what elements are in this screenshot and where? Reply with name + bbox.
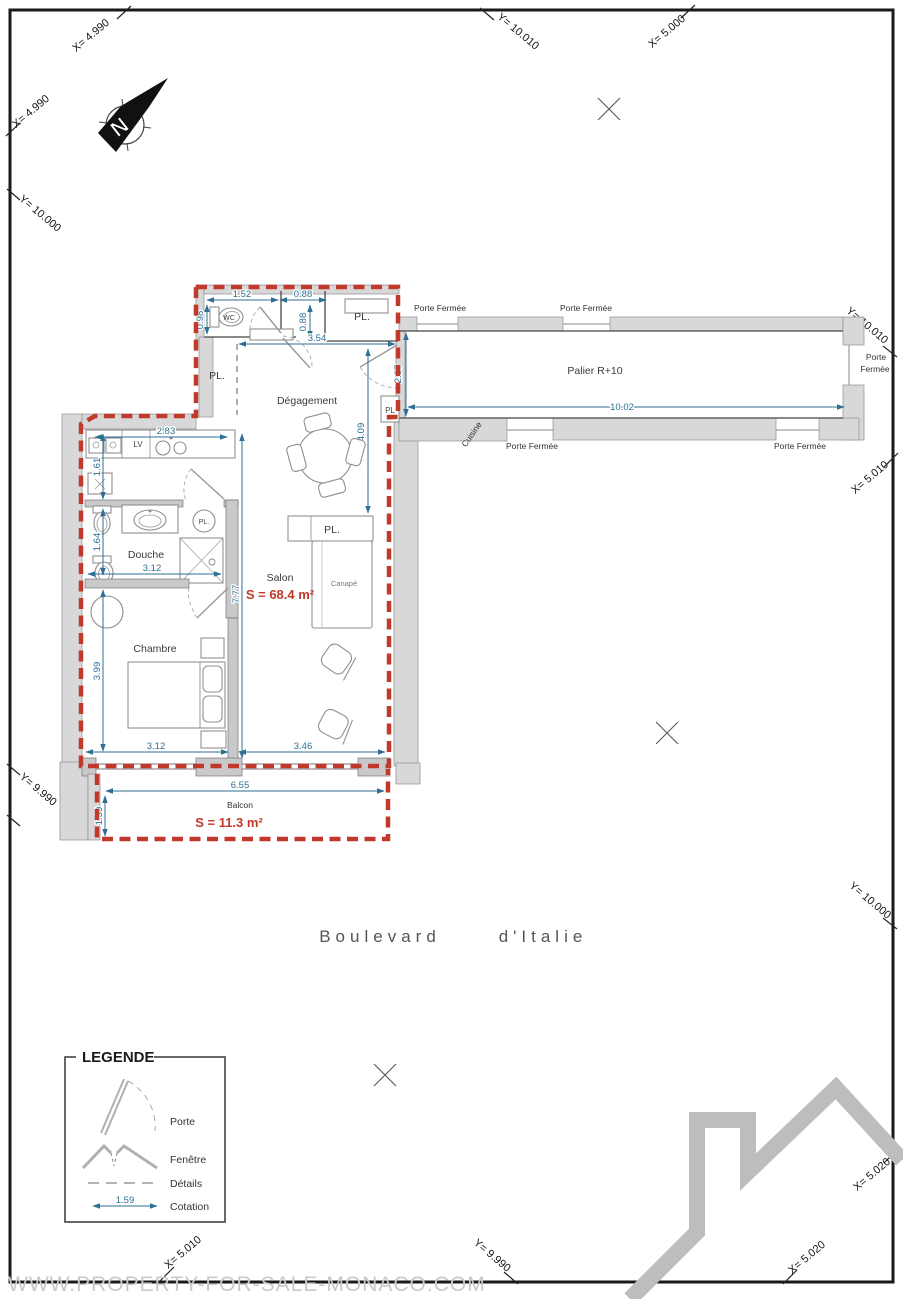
grid-label-top-2: Y= 10.010 <box>495 11 541 53</box>
dim-bathroom-depth: 1.64 <box>92 533 103 552</box>
grid-label-left-1: X= 4.990 <box>10 93 52 131</box>
closet-label-top: PL. <box>354 311 370 323</box>
grid-label-top-1: X= 4.990 <box>70 17 112 55</box>
grid-label-right-4: X= 5.020 <box>851 1156 893 1194</box>
salon-area-label: S = 68.4 m² <box>246 587 315 602</box>
legend-item-cotation: Cotation <box>170 1201 209 1213</box>
closed-door-label-3: Porte Fermée <box>506 441 558 451</box>
closed-door-label-right-1: Porte <box>866 352 887 362</box>
closed-door-label-2: Porte Fermée <box>560 303 612 313</box>
closet-label-bathroom: PL. <box>199 519 210 526</box>
dim-kitchen-width: 2.83 <box>157 426 176 437</box>
room-label-chambre: Chambre <box>133 643 176 655</box>
dim-niche-width: 0.88 <box>294 289 313 300</box>
dim-corridor-length: 10.02 <box>610 402 634 413</box>
legend-cotation-value: 1.59 <box>116 1195 135 1206</box>
legend-item-porte: Porte <box>170 1116 195 1128</box>
legend: LEGENDE Porte Fenêtre Détails 1.59 Cotat… <box>65 1046 225 1222</box>
entry-block: WC PL. PL. PL Dégagement 1.52 0.88 0.98 … <box>195 285 399 513</box>
grid-label-right-2: X= 5.010 <box>849 459 891 497</box>
legend-title: LEGENDE <box>82 1049 155 1066</box>
dim-salon-width: 3.46 <box>294 741 313 752</box>
grid-label-bottom-2: Y= 9.990 <box>471 1237 513 1275</box>
grid-label-bottom-3: X= 5.020 <box>786 1239 828 1277</box>
watermark: WWW.PROPERTY-FOR-SALE-MONACO.COM <box>8 1273 486 1296</box>
dim-salon-height: 7.77 <box>231 585 242 604</box>
bedroom-chambre: Chambre 3.99 3.12 <box>86 590 238 765</box>
balcony-area-label: S = 11.3 m² <box>195 815 263 830</box>
dim-kitchen-depth: 1.61 <box>92 458 103 477</box>
room-label-balcon: Balcon <box>227 800 253 810</box>
wardrobe-label: PL. <box>324 524 340 536</box>
grid-label-bottom-1: X= 5.010 <box>162 1234 204 1272</box>
grid-label-top-3: X= 5.000 <box>646 13 688 51</box>
closed-door-label-right-2: Fermée <box>860 364 890 374</box>
floor-plan-page: X= 4.990 Y= 10.010 X= 5.000 X= 4.990 Y= … <box>0 0 903 1299</box>
house-logo <box>630 1088 902 1299</box>
street-name: Boulevard d'Italie <box>319 927 587 946</box>
dishwasher-label: LV <box>133 440 143 449</box>
room-label-degagement: Dégagement <box>277 395 337 407</box>
room-label-salon: Salon <box>267 572 294 584</box>
dim-entry-depth: 0.88 <box>298 313 309 332</box>
street-name-part2: d'Italie <box>499 927 588 946</box>
floor-plan-drawing: X= 4.990 Y= 10.010 X= 5.000 X= 4.990 Y= … <box>0 0 903 1299</box>
legend-item-details: Détails <box>170 1178 202 1190</box>
dim-bathroom-width: 3.12 <box>143 563 162 574</box>
dim-wc-width: 1.52 <box>233 289 252 300</box>
legend-item-fenetre: Fenêtre <box>170 1154 206 1166</box>
closed-door-label-1: Porte Fermée <box>414 303 466 313</box>
dim-bedroom-width: 3.12 <box>147 741 166 752</box>
room-label-palier: Palier R+10 <box>567 365 622 377</box>
kitchen: LV 2.83 1.61 <box>86 426 235 501</box>
closed-door-label-4: Porte Fermée <box>774 441 826 451</box>
room-label-douche: Douche <box>128 549 164 561</box>
balcony: 6.55 Balcon S = 11.3 m² 1.39 <box>88 774 384 840</box>
street-name-part1: Boulevard <box>319 927 441 946</box>
armchair <box>316 707 356 745</box>
compass-north-arrow: N <box>98 78 168 152</box>
closet-label-left: PL. <box>209 370 225 382</box>
dim-hall-width: 3.54 <box>308 333 327 344</box>
room-label-wc: WC <box>223 315 235 322</box>
living-salon: PL. Canapé Salon S = 68.4 m² 7.77 3.46 <box>231 434 385 758</box>
armchair <box>318 641 358 680</box>
closet-label-junction: PL <box>385 406 395 415</box>
grid-label-left-2: Y= 10.000 <box>17 193 63 235</box>
dim-bedroom-height: 3.99 <box>92 662 103 681</box>
dim-balcony-width: 6.55 <box>231 780 250 791</box>
grid-label-left-3: Y= 9.990 <box>17 771 59 809</box>
dim-hall-length: 4.09 <box>356 423 367 442</box>
dining-table <box>286 412 366 498</box>
grid-label-right-3: Y= 10.000 <box>847 880 893 922</box>
wc-tank <box>210 307 219 327</box>
sofa-label: Canapé <box>331 579 357 588</box>
corridor-palier: Palier R+10 Porte Fermée Porte Fermée Po… <box>393 303 890 451</box>
